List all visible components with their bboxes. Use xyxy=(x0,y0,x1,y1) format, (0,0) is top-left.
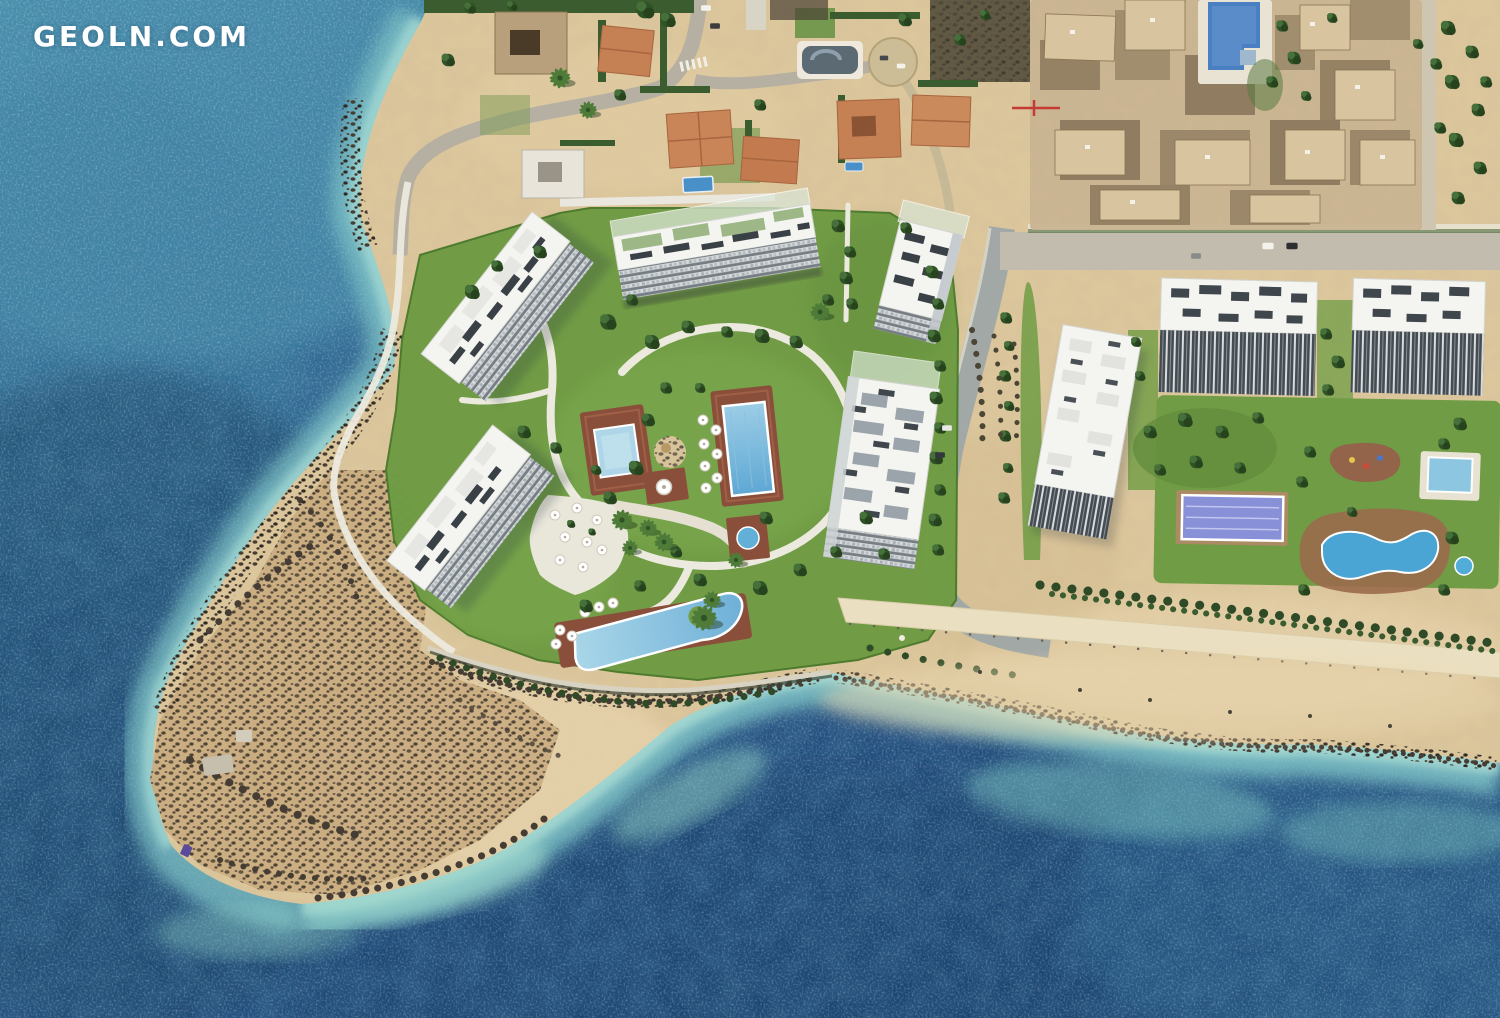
villa xyxy=(911,95,971,147)
watermark-logo: GEOLN.COM xyxy=(33,20,250,53)
spa-pool xyxy=(1455,557,1473,575)
villa xyxy=(598,25,655,76)
aerial-screenshot: GEOLN.COM xyxy=(0,0,1500,1018)
villa xyxy=(741,136,800,184)
apartment-slab-c xyxy=(1351,278,1486,395)
street-car xyxy=(942,425,952,431)
beach-umbrella xyxy=(899,635,905,641)
ruin-structure xyxy=(236,730,252,742)
covered-pool xyxy=(797,41,863,79)
villa xyxy=(837,99,901,159)
aerial-image xyxy=(0,0,1500,1018)
villa-pool xyxy=(683,176,714,193)
small-pool xyxy=(1419,451,1481,501)
roundabout xyxy=(869,38,917,86)
villa-flat xyxy=(522,150,584,198)
lap-pool-court xyxy=(1176,490,1289,546)
apartment-slab-b xyxy=(1159,278,1318,396)
kiddie-pool xyxy=(1240,50,1256,65)
villa xyxy=(495,12,567,74)
street-car xyxy=(935,452,945,458)
villa-pool xyxy=(845,162,863,171)
pool-main xyxy=(710,385,784,507)
villa xyxy=(666,110,734,168)
urban-block xyxy=(1012,0,1422,230)
